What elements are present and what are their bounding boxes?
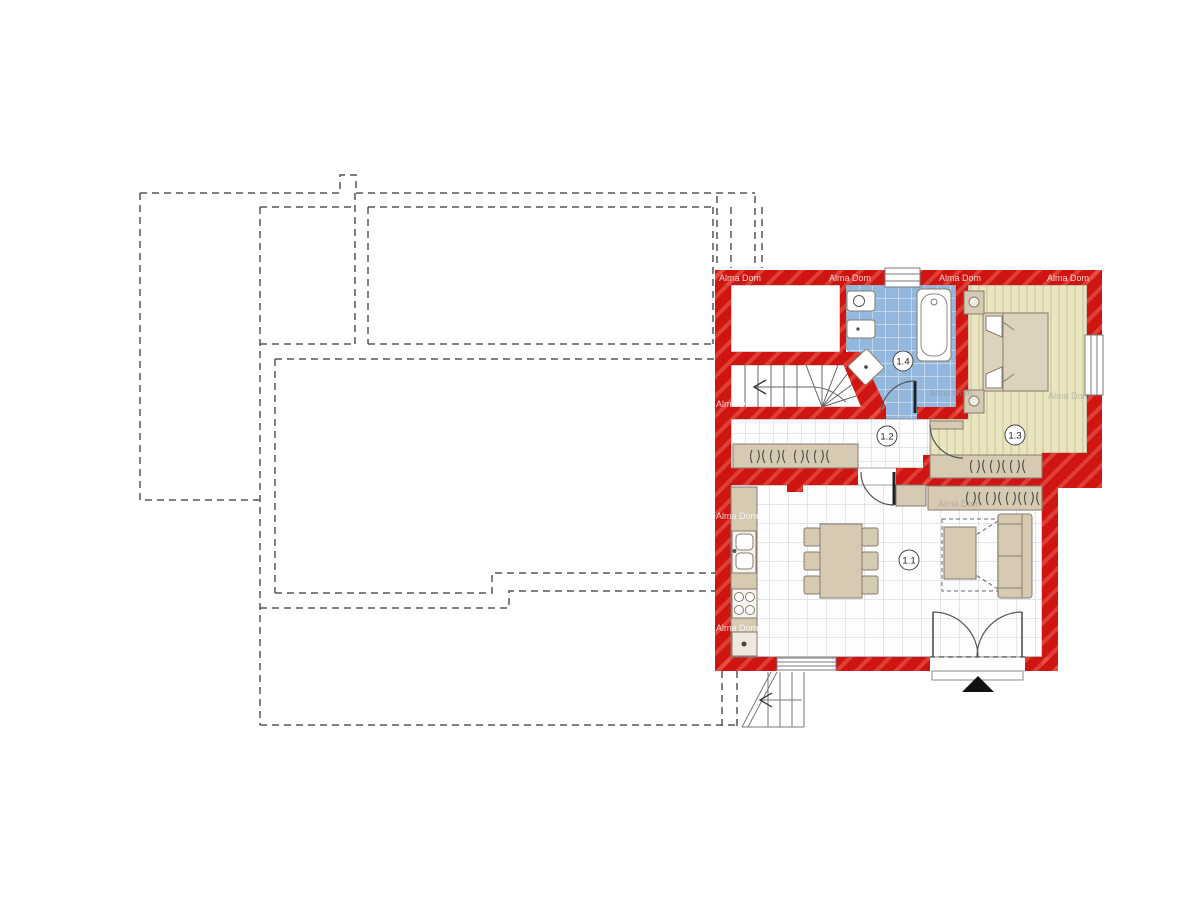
fridge (732, 632, 757, 656)
coffee-table (944, 527, 976, 579)
chair (862, 552, 878, 570)
watermark: Alma Dom (829, 273, 871, 283)
dashed-stub-top (717, 196, 762, 268)
toilet (847, 291, 875, 311)
room-label-hall: 1.2 (877, 426, 897, 446)
hall-wardrobe (733, 444, 858, 468)
room-label-living: 1.1 (899, 550, 919, 570)
sofa (998, 514, 1032, 598)
chair (862, 576, 878, 594)
dining-table (820, 524, 862, 598)
living-room-floor (731, 485, 1042, 657)
kitchen-window (777, 658, 836, 670)
bathtub (917, 289, 951, 361)
old-building-dashed-outline (140, 175, 762, 727)
room-label-text: 1.1 (902, 556, 915, 567)
stove (732, 589, 757, 618)
watermark: Alma Dom (930, 388, 972, 398)
hall-cabinet (896, 485, 926, 506)
nightstand (964, 291, 984, 314)
kitchen-sink (732, 531, 756, 573)
bidet (847, 320, 875, 338)
bedroom-wardrobe (930, 455, 1042, 478)
watermark: Alma Dom (938, 499, 980, 509)
room-label-text: 1.4 (896, 357, 909, 368)
bed (983, 313, 1048, 391)
floor-plan-page: 1.1 1.2 1.3 1.4 Alma Dom Alma Dom Alma D… (0, 0, 1200, 898)
dashed-stub-bottom (722, 671, 737, 727)
chair (804, 576, 820, 594)
bedroom-window (1085, 335, 1103, 395)
chair (804, 552, 820, 570)
dining-set (804, 524, 878, 598)
watermark: Alma Dom (719, 273, 761, 283)
watermark: Alma Dom (939, 273, 981, 283)
watermark: Alma Dom (716, 511, 758, 521)
watermark: Alma Dom (1047, 273, 1089, 283)
watermark: Alma Dom (1048, 391, 1090, 401)
exterior-stairs (742, 672, 804, 727)
storage-room-floor (731, 285, 840, 352)
watermark: Alma Dom (716, 623, 758, 633)
dashed-outer-top (140, 175, 755, 193)
dashed-step-a (275, 573, 715, 593)
bathroom-window (885, 268, 920, 287)
chair (804, 528, 820, 546)
watermark: Alma Dom (716, 399, 758, 409)
dashed-outer-left (140, 193, 260, 500)
room-label-bathroom: 1.4 (893, 351, 913, 371)
chair (862, 528, 878, 546)
room-label-text: 1.2 (880, 432, 893, 443)
floor-plan-svg: 1.1 1.2 1.3 1.4 Alma Dom Alma Dom Alma D… (0, 0, 1200, 898)
room-label-text: 1.3 (1008, 431, 1021, 442)
room-label-bedroom: 1.3 (1005, 425, 1025, 445)
